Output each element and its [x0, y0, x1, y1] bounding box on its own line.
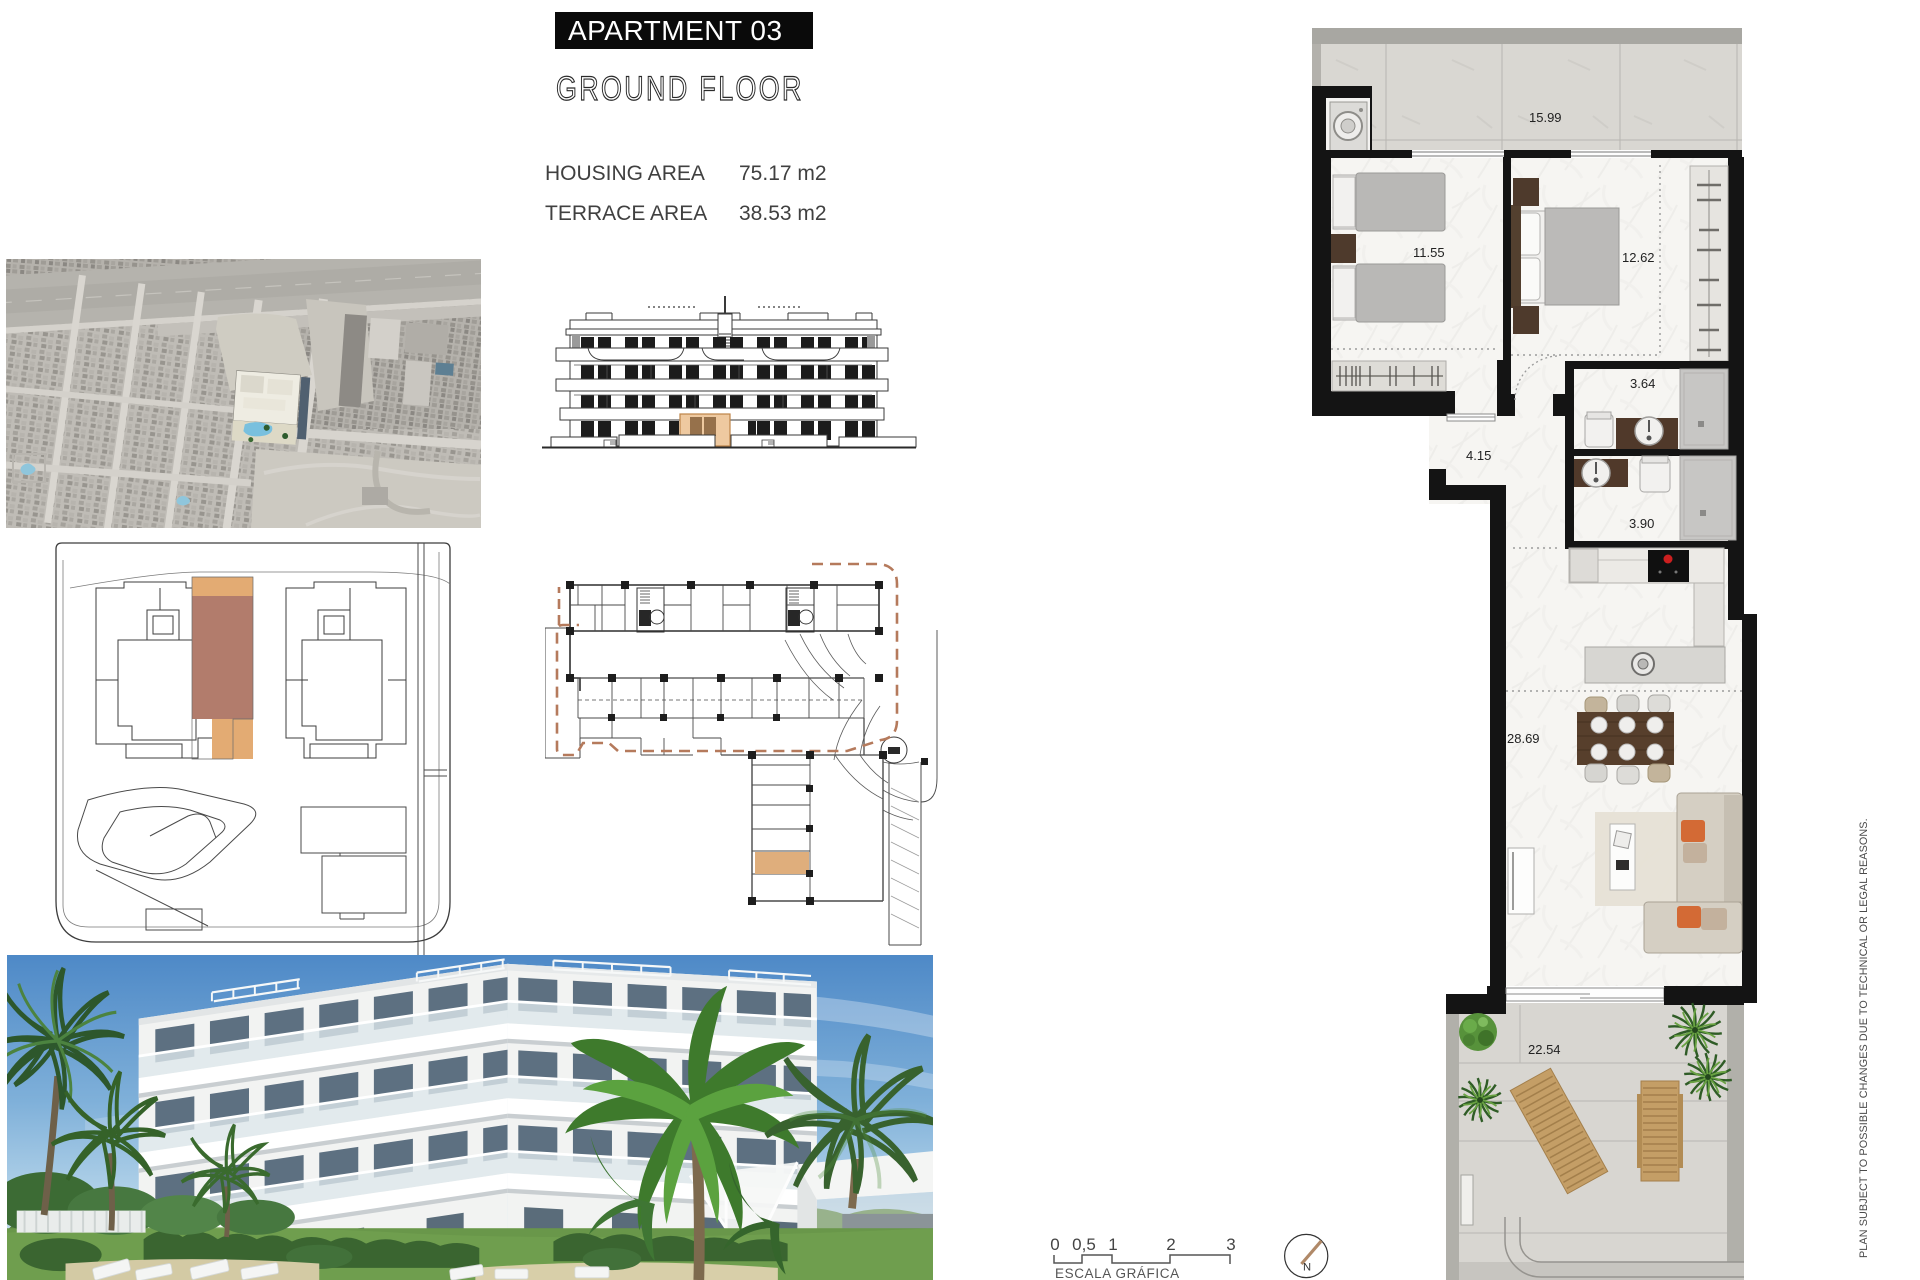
- svg-text:22.54: 22.54: [1528, 1042, 1561, 1057]
- svg-text:0,5: 0,5: [1072, 1235, 1096, 1254]
- svg-text:ESCALA GRÁFICA: ESCALA GRÁFICA: [1055, 1266, 1180, 1280]
- svg-text:15.99: 15.99: [1529, 110, 1562, 125]
- svg-text:2: 2: [1166, 1235, 1175, 1254]
- svg-text:N: N: [1303, 1261, 1311, 1273]
- svg-text:3.90: 3.90: [1629, 516, 1654, 531]
- svg-text:1: 1: [1108, 1235, 1117, 1254]
- svg-text:11.55: 11.55: [1413, 245, 1445, 260]
- svg-text:4.15: 4.15: [1466, 448, 1491, 463]
- svg-text:3.64: 3.64: [1630, 376, 1655, 391]
- svg-text:3: 3: [1226, 1235, 1235, 1254]
- svg-text:0: 0: [1050, 1235, 1059, 1254]
- svg-text:12.62: 12.62: [1622, 250, 1655, 265]
- svg-text:28.69: 28.69: [1507, 731, 1540, 746]
